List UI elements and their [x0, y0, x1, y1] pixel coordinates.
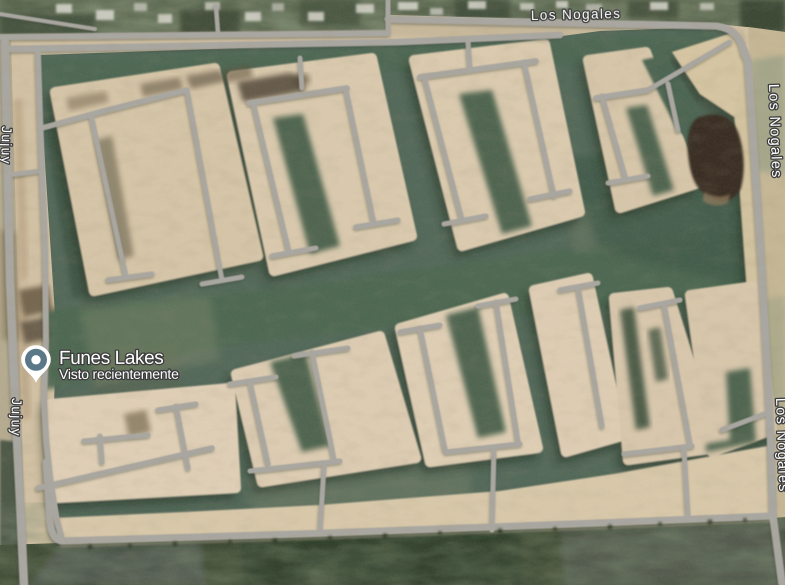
svg-text:Los Nogales: Los Nogales — [531, 6, 622, 23]
svg-text:Los Nogales: Los Nogales — [765, 84, 784, 179]
svg-text:Visto recientemente: Visto recientemente — [59, 366, 179, 382]
svg-text:Jujuy: Jujuy — [8, 398, 25, 437]
svg-text:Jujuy: Jujuy — [0, 126, 15, 165]
